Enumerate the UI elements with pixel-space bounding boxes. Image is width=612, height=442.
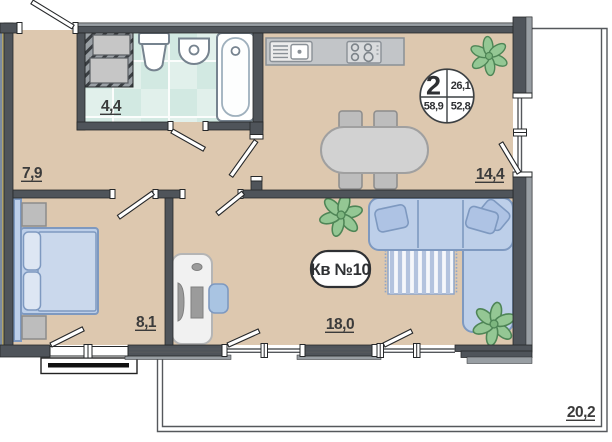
bedroom-living-wall (165, 198, 173, 345)
bathroom-kitchen-wall (253, 33, 263, 122)
bottom-wall (128, 345, 227, 356)
bottom-wall (300, 345, 377, 356)
hall-bedroom-wall (13, 190, 115, 198)
bathroom-area-label: 4,4 (101, 98, 122, 115)
hallway-area-label: 7,9 (22, 165, 43, 182)
stepped-corner (455, 345, 532, 364)
bathroom-left-wall (77, 33, 85, 130)
floor-plan: 2 26,1 58,9 52,8 Кв №10 7,9 4,4 8,1 18,0… (0, 0, 612, 442)
bottom-wall (0, 345, 50, 357)
floor-plan-canvas: 2 26,1 58,9 52,8 Кв №10 7,9 4,4 8,1 18,0… (0, 0, 612, 442)
badge-living-area: 26,1 (451, 80, 471, 92)
bedroom-area-label: 8,1 (136, 314, 157, 331)
kitchen-living-wall (243, 190, 513, 198)
left-wall (4, 23, 13, 355)
terrace-area-label: 20,2 (567, 404, 595, 421)
entrance-door-leaf-icon (31, 0, 74, 29)
window-icon (50, 345, 128, 359)
bathroom-bottom-wall (77, 122, 173, 130)
sink-icon (179, 39, 209, 65)
office-chair-icon (209, 284, 228, 313)
nightstand-icon (22, 316, 46, 339)
badge-total-area: 52,8 (451, 101, 471, 113)
living-room-area-label: 18,0 (326, 316, 354, 333)
nightstand-icon (22, 203, 46, 226)
unit-info-badge: 2 26,1 58,9 52,8 (420, 69, 474, 123)
stove-icon (347, 42, 381, 64)
kitchen-area-label: 14,4 (476, 166, 505, 183)
vent-shaft-icon (85, 30, 133, 87)
apartment-label-badge: Кв №10 (311, 251, 371, 287)
apartment-label: Кв №10 (311, 261, 371, 279)
bathtub-icon (217, 33, 254, 121)
badge-total-with-balcony: 58,9 (424, 101, 444, 113)
badge-rooms-count: 2 (426, 71, 441, 101)
kitchen-sink-icon (270, 42, 312, 62)
balcony-icon (41, 358, 137, 374)
rug-icon (386, 249, 457, 294)
